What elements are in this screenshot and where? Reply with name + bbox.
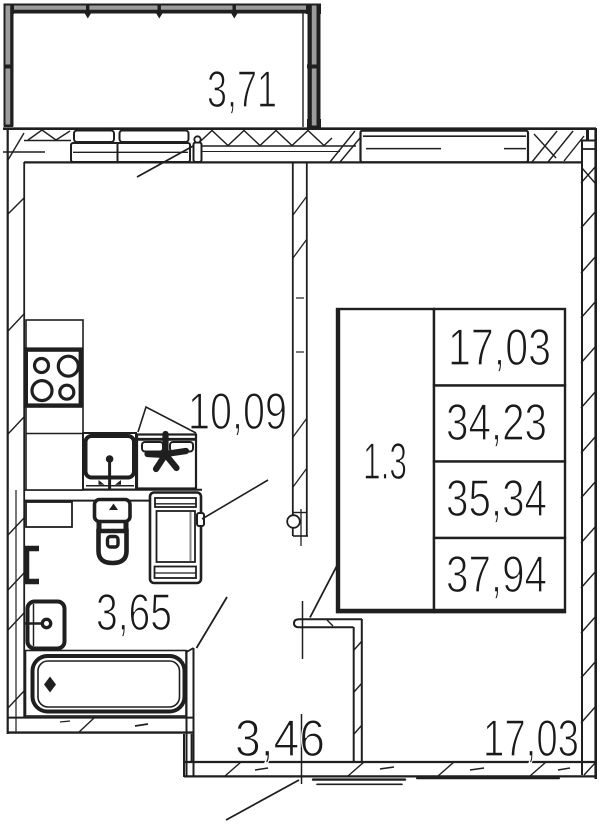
svg-text:10,09: 10,09 [188, 383, 287, 441]
svg-text:37,94: 37,94 [446, 546, 547, 604]
svg-text:3,65: 3,65 [96, 584, 172, 642]
svg-text:3,46: 3,46 [235, 710, 325, 768]
svg-text:35,34: 35,34 [446, 470, 547, 528]
svg-text:3,71: 3,71 [207, 61, 277, 119]
svg-text:34,23: 34,23 [446, 394, 547, 452]
svg-text:1.3: 1.3 [363, 433, 407, 491]
svg-text:17,03: 17,03 [483, 710, 579, 768]
svg-text:17,03: 17,03 [448, 319, 551, 377]
